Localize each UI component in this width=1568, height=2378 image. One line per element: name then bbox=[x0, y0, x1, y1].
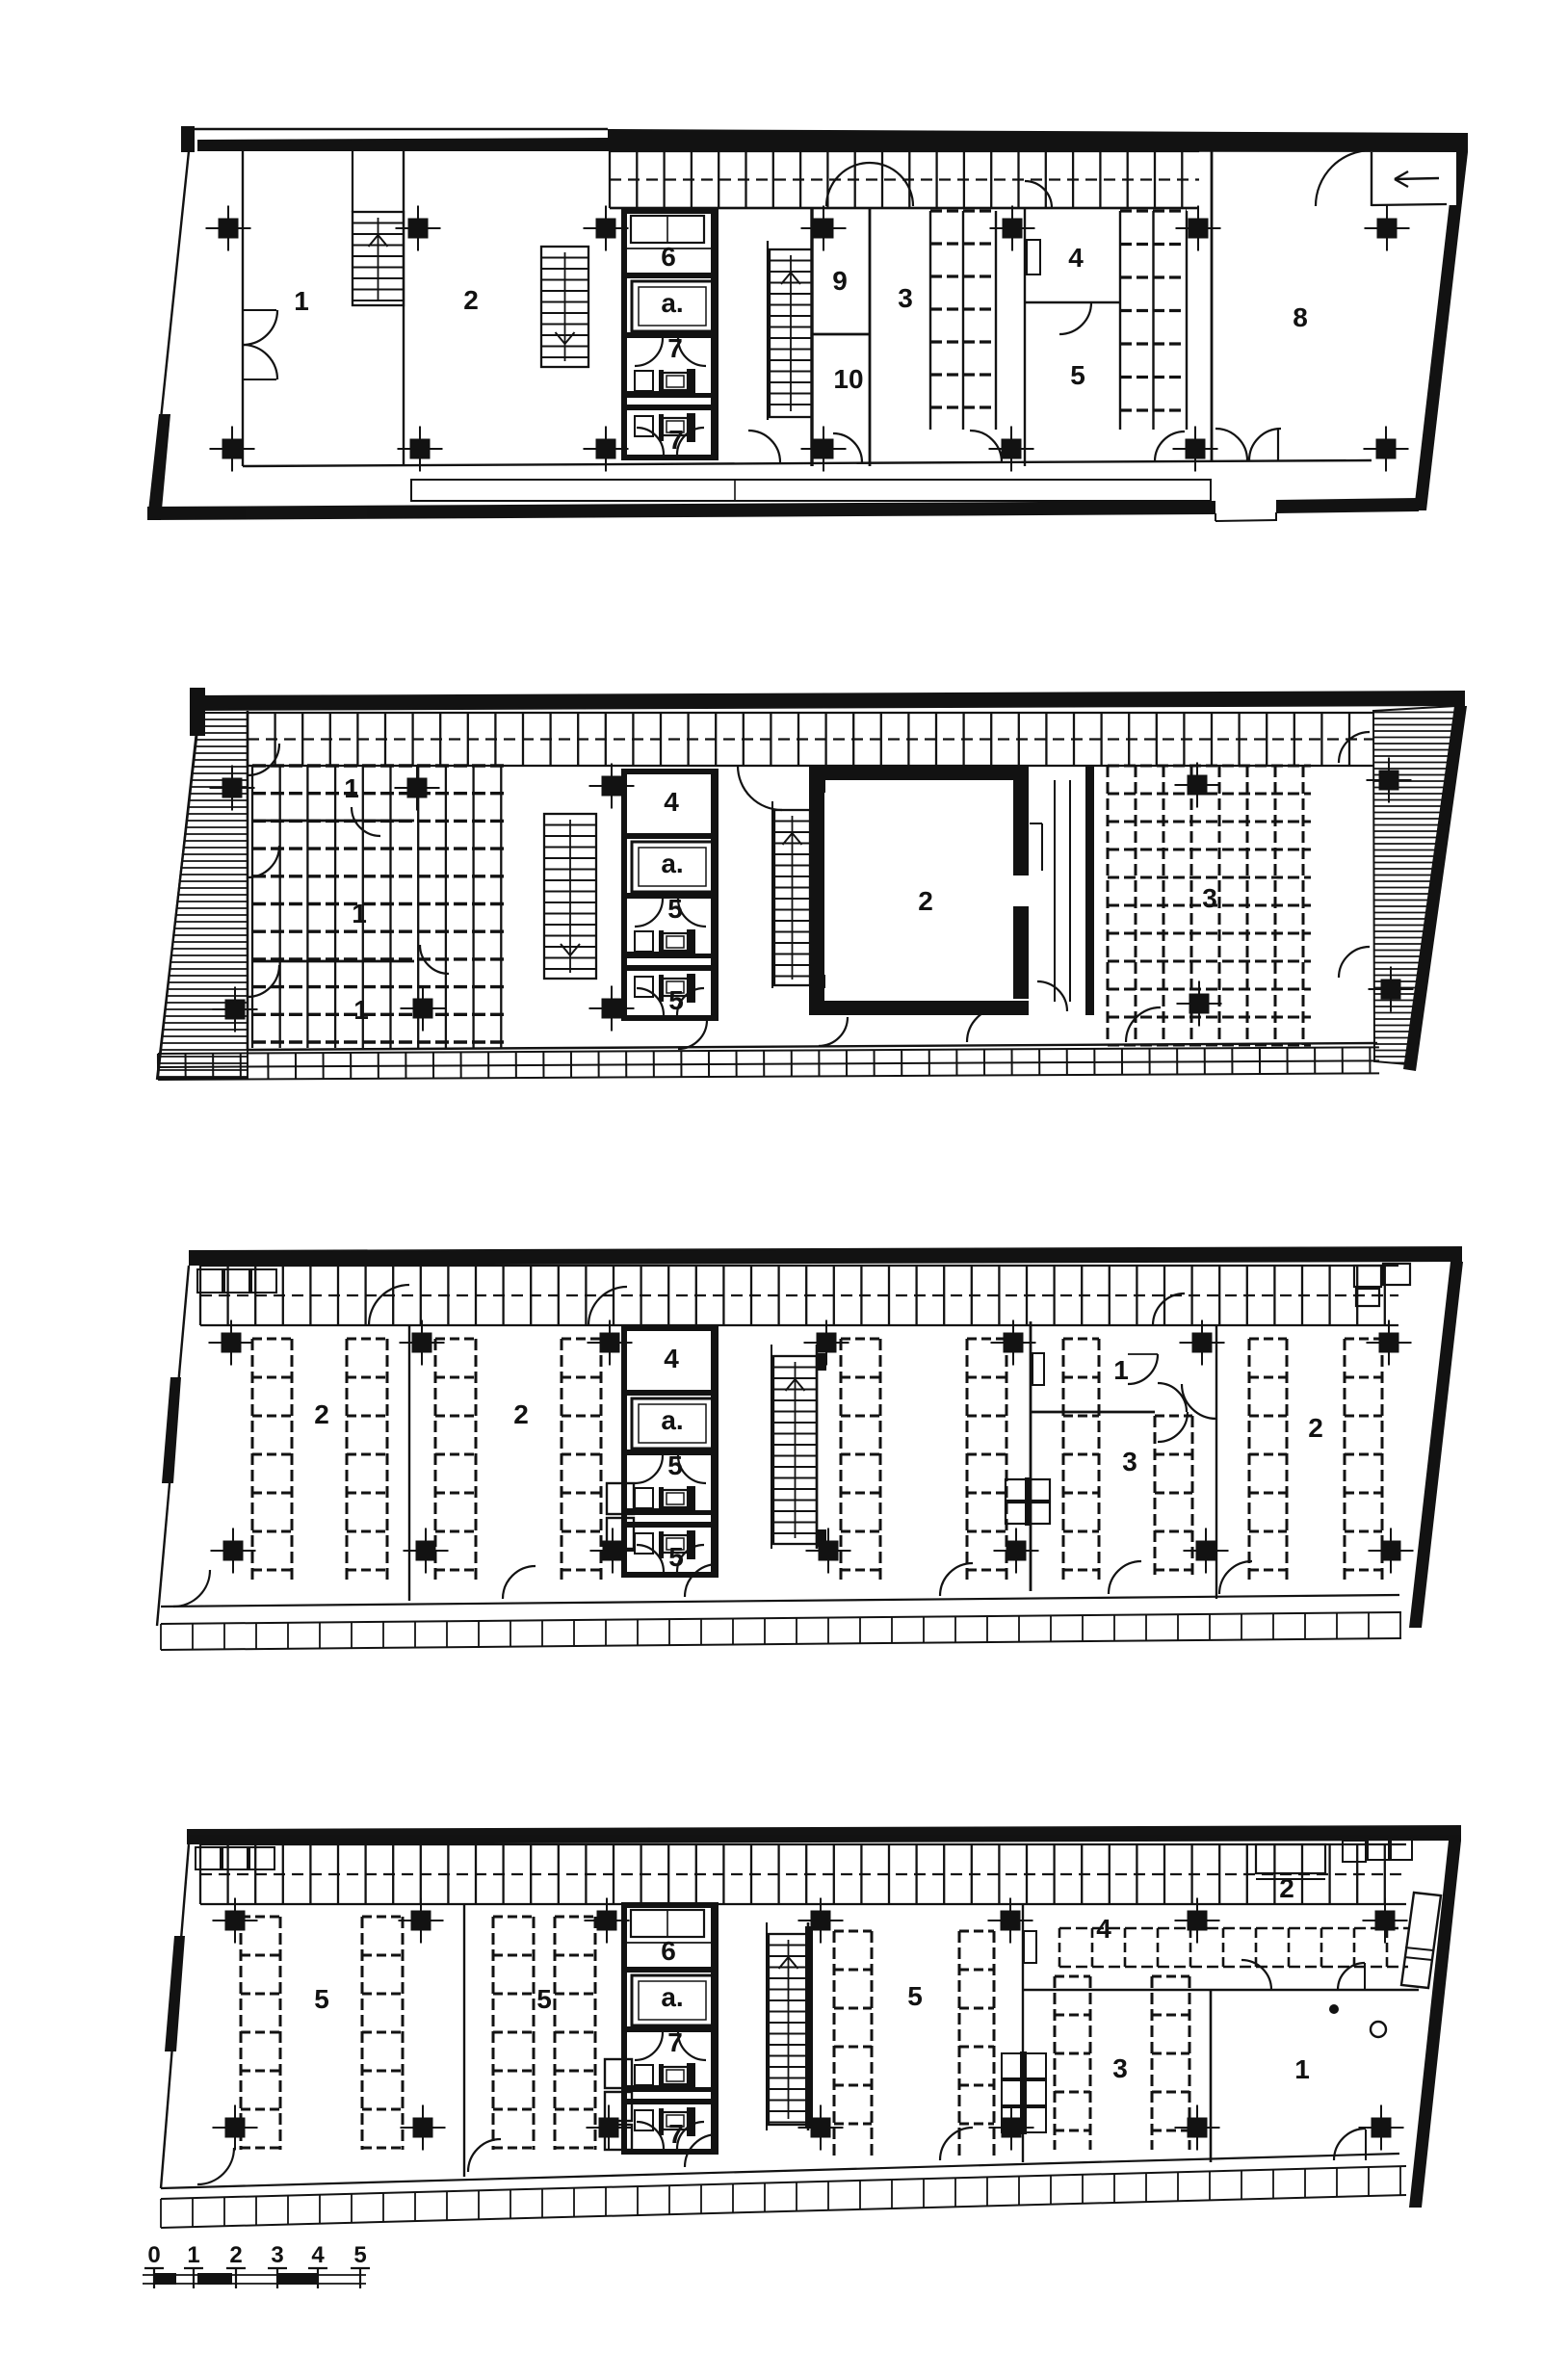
svg-text:1: 1 bbox=[344, 773, 359, 803]
svg-text:2: 2 bbox=[918, 886, 933, 916]
svg-text:5: 5 bbox=[667, 894, 683, 924]
svg-text:1: 1 bbox=[352, 899, 367, 928]
svg-text:5: 5 bbox=[314, 1984, 329, 2014]
svg-text:4: 4 bbox=[311, 2242, 325, 2268]
svg-text:1: 1 bbox=[1113, 1355, 1129, 1385]
svg-text:0: 0 bbox=[147, 2242, 160, 2268]
svg-text:4: 4 bbox=[664, 787, 679, 817]
svg-text:2: 2 bbox=[229, 2242, 242, 2268]
svg-text:5: 5 bbox=[667, 1450, 683, 1480]
svg-text:a.: a. bbox=[661, 288, 683, 318]
svg-text:3: 3 bbox=[271, 2242, 283, 2268]
svg-text:2: 2 bbox=[314, 1399, 329, 1429]
svg-text:a.: a. bbox=[661, 849, 683, 878]
svg-text:5: 5 bbox=[1070, 360, 1085, 390]
svg-text:1: 1 bbox=[187, 2242, 199, 2268]
svg-text:2: 2 bbox=[463, 285, 479, 315]
svg-text:7: 7 bbox=[667, 333, 683, 363]
svg-text:9: 9 bbox=[832, 266, 848, 296]
svg-text:8: 8 bbox=[1293, 302, 1308, 332]
svg-text:1: 1 bbox=[294, 286, 309, 316]
svg-text:3: 3 bbox=[1122, 1447, 1137, 1476]
svg-text:4: 4 bbox=[1068, 243, 1084, 273]
svg-text:a.: a. bbox=[661, 1405, 683, 1435]
svg-text:6: 6 bbox=[661, 242, 676, 272]
svg-text:7: 7 bbox=[668, 2119, 684, 2149]
svg-text:7: 7 bbox=[668, 425, 684, 455]
svg-text:5: 5 bbox=[353, 2242, 366, 2268]
svg-text:3: 3 bbox=[1202, 883, 1217, 913]
svg-text:2: 2 bbox=[1279, 1873, 1294, 1903]
svg-text:5: 5 bbox=[536, 1984, 552, 2014]
svg-text:2: 2 bbox=[513, 1399, 529, 1429]
svg-text:1: 1 bbox=[353, 995, 369, 1025]
svg-text:5: 5 bbox=[907, 1981, 923, 2011]
svg-text:5: 5 bbox=[668, 1542, 684, 1572]
svg-text:3: 3 bbox=[898, 283, 913, 313]
svg-text:2: 2 bbox=[1308, 1413, 1323, 1443]
svg-text:5: 5 bbox=[668, 985, 684, 1015]
svg-text:7: 7 bbox=[667, 2027, 683, 2057]
svg-text:3: 3 bbox=[1112, 2053, 1128, 2083]
svg-text:6: 6 bbox=[661, 1936, 676, 1966]
svg-text:4: 4 bbox=[664, 1344, 679, 1373]
svg-text:1: 1 bbox=[1294, 2054, 1310, 2084]
svg-text:10: 10 bbox=[833, 364, 863, 394]
svg-text:a.: a. bbox=[661, 1982, 683, 2012]
